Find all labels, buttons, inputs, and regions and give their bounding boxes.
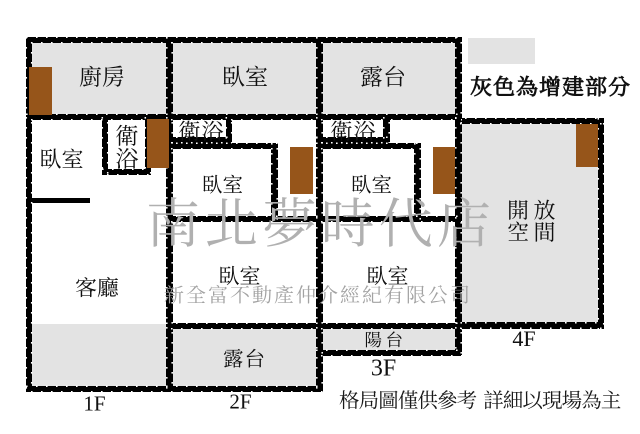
svg-text:3F: 3F [371,356,396,382]
svg-text:4F: 4F [512,326,535,351]
svg-text:2F: 2F [229,390,251,414]
svg-text:1F: 1F [83,392,105,416]
